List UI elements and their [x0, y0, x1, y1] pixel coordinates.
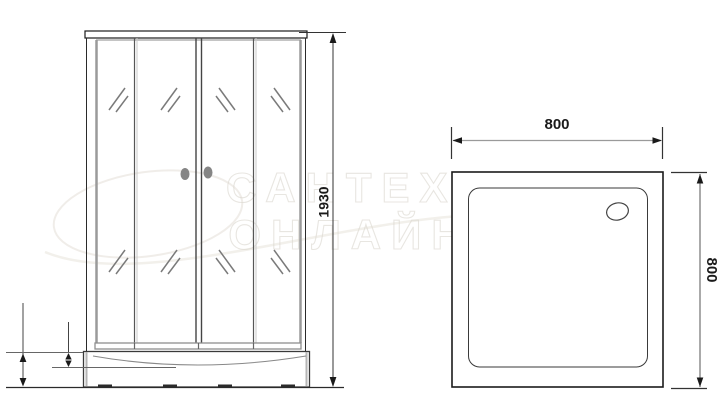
door-handle-right: [204, 167, 213, 179]
width-arrow-left: [453, 137, 463, 144]
depth-arrow-bottom: [697, 378, 704, 388]
height-arrow-top: [330, 33, 337, 43]
shower-tray: [84, 352, 310, 388]
top-view: 800 800: [452, 116, 721, 389]
tray-outline: [452, 172, 663, 387]
watermark-swirl: [48, 159, 248, 269]
depth-dimension-label: 800: [703, 257, 720, 282]
height-arrow-bottom: [330, 377, 337, 387]
top-frame-bar: [85, 31, 307, 38]
depth-dimension: 800: [671, 173, 720, 389]
tray-height-dimension: [6, 303, 83, 387]
width-dimension-label: 800: [544, 116, 569, 133]
depth-arrow-top: [697, 174, 704, 184]
height-dimension-label: 1930: [316, 186, 332, 217]
width-dimension: 800: [452, 116, 663, 159]
door-handle-left: [181, 168, 190, 180]
width-arrow-right: [653, 137, 663, 144]
shower-enclosure-dimension-diagram: САНТЕХНИКА ОНЛАЙН: [0, 0, 725, 416]
watermark-line2: ОНЛАЙН: [228, 210, 471, 258]
